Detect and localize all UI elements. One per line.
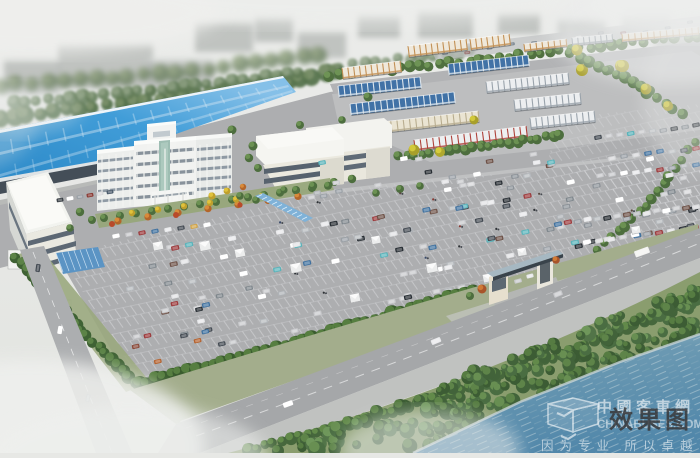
svg-text:因为专业 所以卓越: 因为专业 所以卓越: [541, 438, 698, 453]
svg-text:效果图: 效果图: [609, 406, 693, 434]
